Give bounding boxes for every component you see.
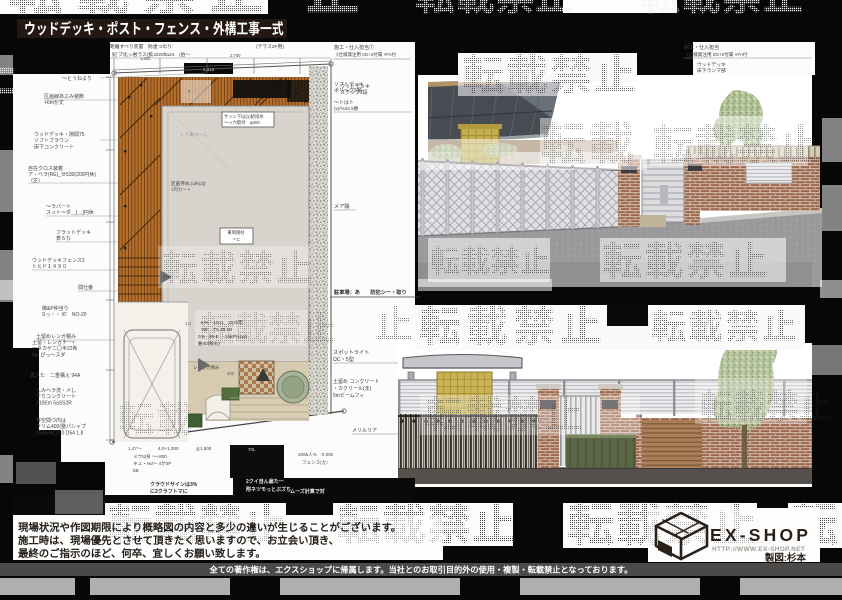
svg-text:全ての著作権は、エクスショップに帰属します。当社とのお取引目: 全ての著作権は、エクスショップに帰属します。当社とのお取引目的外の使用・複製・転…: [209, 565, 633, 575]
